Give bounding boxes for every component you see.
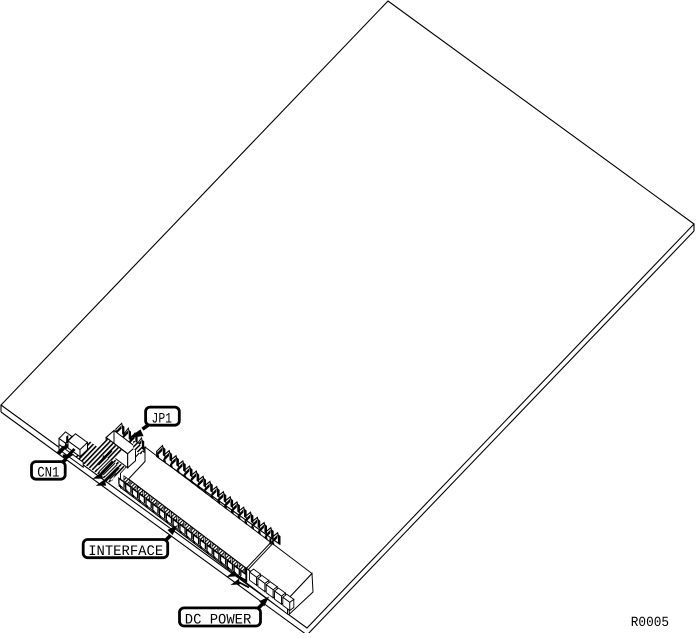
svg-text:INTERFACE: INTERFACE <box>88 544 163 560</box>
svg-text:R0005: R0005 <box>631 615 669 631</box>
svg-text:CN1: CN1 <box>37 466 59 482</box>
svg-text:JP1: JP1 <box>152 412 173 428</box>
svg-text:DC POWER: DC POWER <box>185 612 252 628</box>
